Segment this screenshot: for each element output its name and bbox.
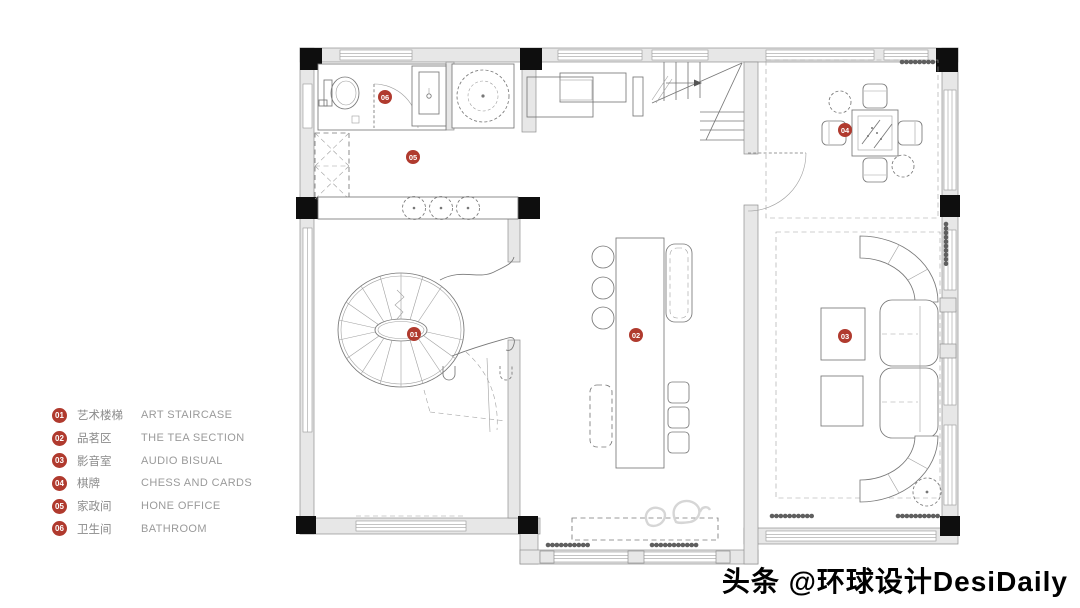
room-marker: 02 xyxy=(629,328,643,342)
spiral-staircase xyxy=(338,257,514,432)
legend-badge: 03 xyxy=(52,453,67,468)
tea-table xyxy=(616,238,664,468)
legend-badge: 05 xyxy=(52,499,67,514)
square-stool xyxy=(668,432,689,453)
console-table xyxy=(527,73,643,117)
room-marker: 04 xyxy=(838,123,852,137)
legend-item: 01艺术楼梯ART STAIRCASE xyxy=(52,404,252,427)
legend-badge: 06 xyxy=(52,521,67,536)
chess-room xyxy=(748,60,938,218)
stool xyxy=(829,91,851,113)
door-swing xyxy=(748,153,806,211)
vanity xyxy=(412,66,446,126)
room-marker: 01 xyxy=(407,327,421,341)
stool xyxy=(892,155,914,177)
watermark: 头条 @环球设计DesiDaily xyxy=(722,560,1068,600)
round-stool xyxy=(592,277,614,299)
legend-label-en: CHESS AND CARDS xyxy=(141,477,252,489)
tree-planter xyxy=(452,64,514,128)
chair xyxy=(863,84,887,108)
floor-plan-page: 010203040506 01艺术楼梯ART STAIRCASE02品茗区THE… xyxy=(0,0,1080,608)
room-marker: 06 xyxy=(378,90,392,104)
legend-label-cn: 家政间 xyxy=(77,498,141,514)
legend-label-cn: 艺术楼梯 xyxy=(77,407,141,423)
legend-label-en: HONE OFFICE xyxy=(141,500,221,512)
legend-item: 05家政间HONE OFFICE xyxy=(52,495,252,518)
legend-item: 03影音室AUDIO BISUAL xyxy=(52,449,252,472)
legend-label-en: ART STAIRCASE xyxy=(141,409,232,421)
legend-badge: 02 xyxy=(52,431,67,446)
chair xyxy=(898,121,922,145)
legend-badge: 04 xyxy=(52,476,67,491)
game-table xyxy=(852,110,898,156)
legend-label-cn: 品茗区 xyxy=(77,430,141,446)
legend-label-en: AUDIO BISUAL xyxy=(141,455,223,467)
legend-label-cn: 棋牌 xyxy=(77,475,141,491)
sofa-curve-top xyxy=(860,236,938,302)
sculpture xyxy=(674,501,700,523)
stair-rail xyxy=(440,257,514,280)
legend-item: 02品茗区THE TEA SECTION xyxy=(52,427,252,450)
sofa-cushion xyxy=(880,300,938,366)
side-table xyxy=(821,376,863,426)
sofa-cushion xyxy=(880,368,938,438)
straight-staircase xyxy=(652,62,744,140)
room-marker: 05 xyxy=(406,150,420,164)
audio-room xyxy=(772,224,956,516)
bench-dashed xyxy=(590,385,612,447)
stair-continuation-dashed xyxy=(424,352,506,430)
round-stool xyxy=(592,246,614,268)
legend-label-en: BATHROOM xyxy=(141,523,207,535)
legend-label-en: THE TEA SECTION xyxy=(141,432,245,444)
legend-label-cn: 影音室 xyxy=(77,453,141,469)
sculpture xyxy=(646,508,665,526)
legend: 01艺术楼梯ART STAIRCASE02品茗区THE TEA SECTION0… xyxy=(52,404,252,540)
window-bench xyxy=(548,501,718,545)
legend-badge: 01 xyxy=(52,408,67,423)
legend-item: 06卫生间BATHROOM xyxy=(52,517,252,540)
chair xyxy=(863,158,887,182)
plant-shelf xyxy=(318,197,518,220)
break-line xyxy=(395,290,404,319)
tea-section xyxy=(590,238,692,468)
legend-item: 04棋牌CHESS AND CARDS xyxy=(52,472,252,495)
legend-label-cn: 卫生间 xyxy=(77,521,141,537)
round-stool xyxy=(592,307,614,329)
storage-cabinet xyxy=(315,133,349,199)
square-stool xyxy=(668,382,689,403)
room-marker: 03 xyxy=(838,329,852,343)
square-stool xyxy=(668,407,689,428)
